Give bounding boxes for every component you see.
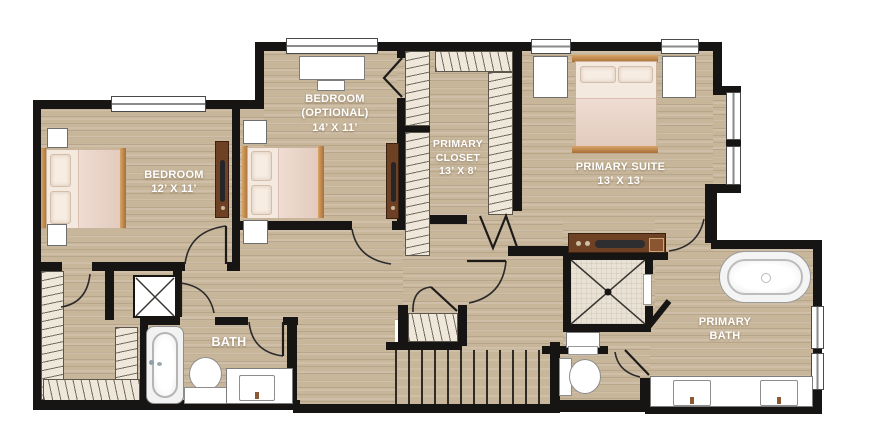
bed — [572, 55, 658, 153]
wall — [255, 42, 264, 109]
toilet — [184, 356, 226, 403]
nightstand — [47, 128, 68, 148]
closet-shelving — [405, 51, 430, 126]
floor-plan-page: { "plan": { "type": "floor-plan", "rooms… — [0, 0, 871, 443]
desk — [299, 56, 365, 80]
nightstand — [243, 120, 267, 144]
room-dimensions: 13’ X 8’ — [412, 165, 504, 179]
wall — [397, 42, 405, 58]
bathtub — [146, 326, 184, 404]
dresser — [386, 143, 399, 219]
closet-shelving — [43, 379, 140, 401]
room-label-primary-closet: PRIMARY CLOSET 13’ X 8’ — [412, 138, 504, 179]
wall — [215, 317, 248, 325]
staircase — [395, 350, 550, 404]
room-name: (OPTIONAL) — [272, 106, 398, 120]
wall — [813, 246, 822, 308]
room-label-primary-suite: PRIMARY SUITE 13’ X 13’ — [543, 160, 698, 189]
wall — [105, 271, 114, 320]
room-dimensions: 12’ X 11’ — [118, 182, 230, 196]
wall — [140, 317, 180, 325]
toilet — [559, 356, 600, 396]
wall — [232, 109, 240, 271]
nightstand — [243, 220, 268, 244]
nightstand — [662, 56, 696, 98]
wall — [563, 252, 571, 332]
shower — [571, 260, 645, 324]
wall — [563, 324, 651, 332]
closet-shelving — [435, 51, 513, 72]
door-leaf — [568, 346, 598, 355]
freestanding-tub — [719, 251, 811, 303]
chair — [317, 80, 345, 91]
window — [726, 146, 741, 185]
wall — [458, 305, 467, 346]
room-name: CLOSET — [412, 152, 504, 166]
window — [811, 306, 824, 349]
window — [531, 39, 571, 54]
room-dimensions: 14’ X 11’ — [272, 121, 398, 135]
bed — [242, 146, 324, 218]
room-name: BEDROOM — [272, 92, 398, 106]
wall — [645, 306, 653, 326]
window — [661, 39, 699, 54]
room-label-bedroom: BEDROOM 12’ X 11’ — [118, 168, 230, 197]
room-name: PRIMARY SUITE — [543, 160, 698, 174]
room-label-primary-bath: PRIMARY BATH — [678, 315, 772, 344]
wall — [398, 305, 408, 346]
sink-vanity — [226, 368, 293, 404]
washer-dryer-box — [133, 275, 177, 318]
room-name: PRIMARY — [678, 315, 772, 329]
room-name: BATH — [196, 334, 262, 350]
wall — [711, 240, 822, 249]
wall — [508, 246, 570, 256]
window — [726, 92, 741, 140]
room-name: PRIMARY — [412, 138, 504, 152]
wall — [705, 190, 717, 243]
wall — [293, 404, 560, 413]
floor-hall — [297, 317, 395, 409]
nightstand — [47, 224, 67, 246]
shower-door — [643, 274, 652, 305]
window — [286, 38, 378, 54]
wall — [713, 51, 722, 91]
room-label-bath: BATH — [196, 334, 262, 350]
bed — [41, 148, 126, 228]
wall — [33, 100, 41, 410]
window — [111, 96, 206, 112]
room-label-bedroom-optional: BEDROOM (OPTIONAL) 14’ X 11’ — [272, 92, 398, 135]
nightstand — [533, 56, 568, 98]
room-name: BEDROOM — [118, 168, 230, 182]
wall — [92, 262, 185, 271]
wall — [645, 252, 653, 274]
room-name: BATH — [678, 329, 772, 343]
wall — [397, 126, 430, 132]
wall — [513, 51, 522, 211]
room-dimensions: 13’ X 13’ — [543, 174, 698, 188]
linen-closet — [408, 313, 458, 342]
wall — [430, 215, 467, 224]
wall — [227, 262, 240, 271]
wall — [640, 378, 650, 406]
dresser — [568, 233, 666, 253]
wall — [41, 262, 62, 271]
double-vanity — [650, 376, 813, 407]
closet-shelving — [115, 327, 138, 380]
